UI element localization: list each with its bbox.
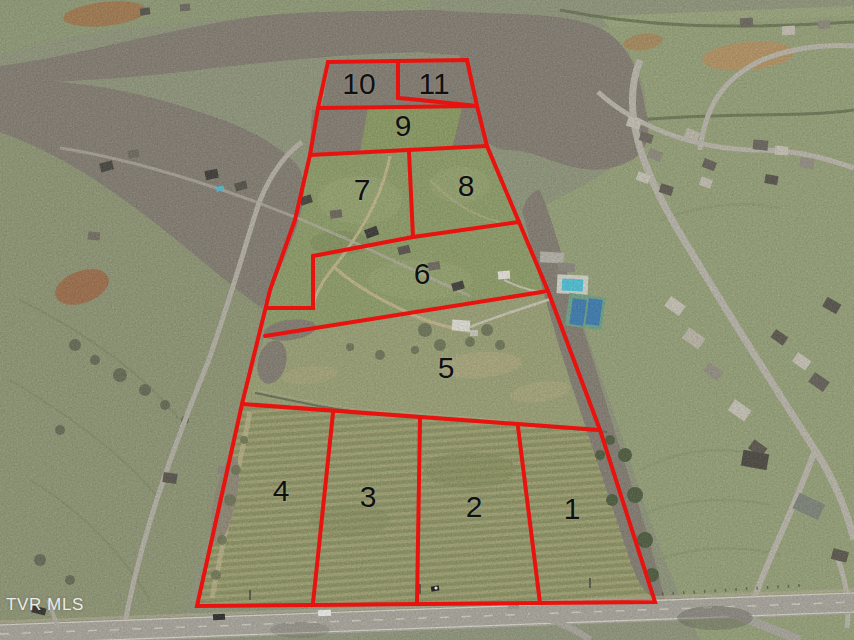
aerial-lot-map: 1 2 3 4 5 6 7 8 9 10 11 TVR MLS	[0, 0, 854, 640]
mls-watermark: TVR MLS	[6, 595, 84, 615]
lot10-bottom	[318, 106, 477, 108]
lot-number-1: 1	[564, 494, 581, 524]
lot-number-11: 11	[418, 69, 449, 99]
lot-number-8: 8	[458, 171, 475, 201]
lot-number-3: 3	[360, 482, 377, 512]
lot-number-5: 5	[438, 353, 455, 383]
lot-number-4: 4	[273, 476, 290, 506]
lot-number-7: 7	[354, 175, 371, 205]
lot-number-2: 2	[466, 492, 483, 522]
lot-number-9: 9	[395, 111, 412, 141]
lot-number-10: 10	[342, 69, 375, 99]
lot-number-6: 6	[414, 259, 431, 289]
